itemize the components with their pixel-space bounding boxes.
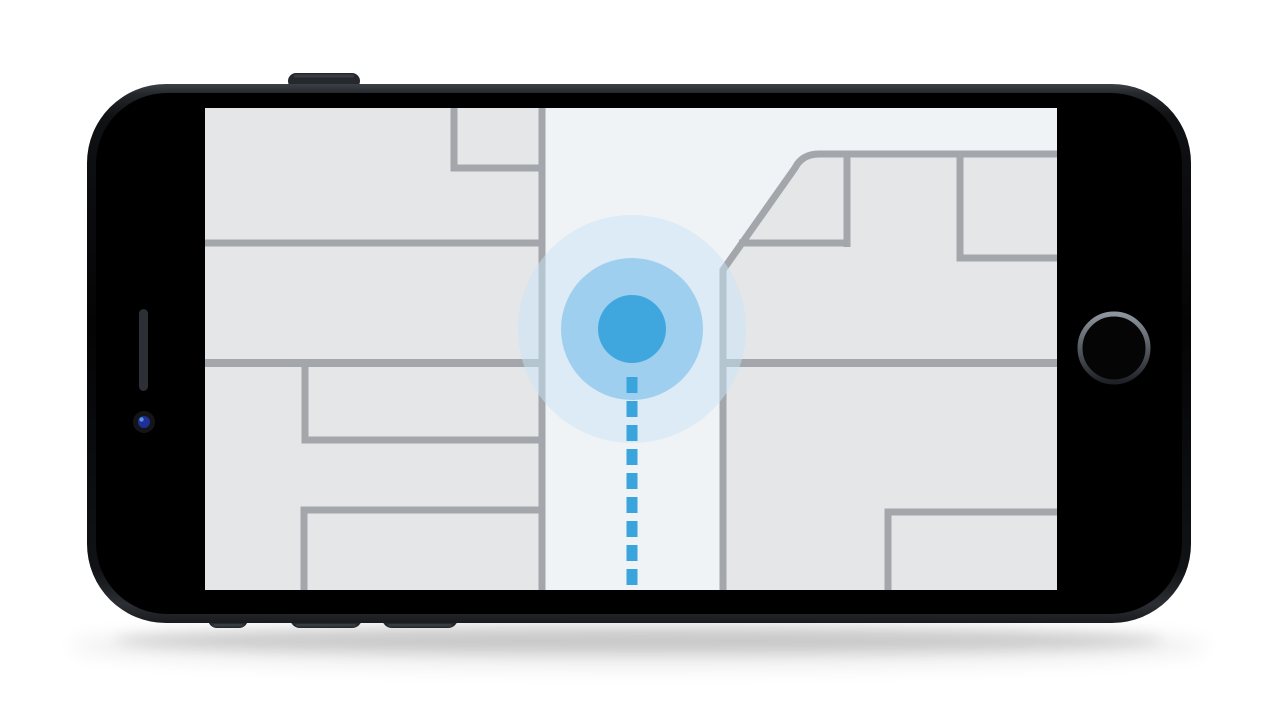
front-camera: [133, 411, 155, 433]
home-button[interactable]: [1080, 314, 1148, 382]
map-screen[interactable]: [205, 108, 1057, 590]
location-dot: [598, 295, 666, 363]
phone-shadow: [69, 624, 1209, 668]
page-background: [0, 0, 1280, 720]
phone-illustration: [0, 0, 1280, 720]
map-block-left: [205, 108, 542, 590]
earpiece-speaker: [139, 309, 148, 391]
